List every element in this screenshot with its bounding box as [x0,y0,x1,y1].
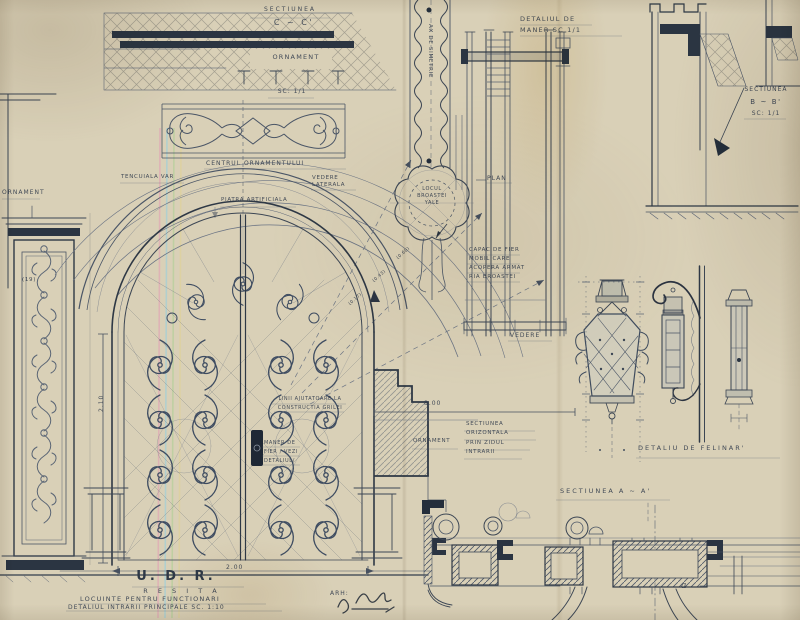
blueprint-sheet: SECTIUNEA C ~ C' ORNAMENT SC: 1/1 CENTRU… [0,0,800,620]
label-detaliul-intrarii: DETALIUL INTRARII PRINCIPALE SC. 1:10 [68,604,318,611]
label-radial-dim-2: (0.43) [372,269,387,284]
label-section-cc-sub: C ~ C' [272,18,316,27]
label-pilaster-note: (19) [22,277,52,283]
label-section-bb-title: SECTIUNEA [738,86,794,93]
label-section-bb-sub: B ~ B' [744,98,788,106]
label-ornament-mid: ORNAMENT [413,438,461,444]
label-udr: U. D. R. [130,569,222,584]
label-radial-dim-1: (0.17) [348,292,363,307]
label-piatra-artificiala: PIATRA ARTIFICIALA [221,197,311,203]
label-vedere-laterala: VEDERE LATERALA [312,175,372,189]
label-scale-cc: SC: 1/1 [270,88,314,95]
label-layer: SECTIUNEA C ~ C' ORNAMENT SC: 1/1 CENTRU… [0,0,800,620]
label-vedere-handle: VEDERE [510,332,554,339]
label-maner-fier: MANER DE FIER / VEZI DETALIUL/ [264,439,308,466]
label-felinar-title: DETALIU DE FELINAR' [638,445,788,453]
label-horizontal-section: SECTIUNEA ORIZONTALA PRIN ZIDUL INTRARII [466,420,536,457]
label-plan: PLAN [487,175,523,182]
label-tencuiala-var: TENCUIALA VAR [121,174,201,180]
label-handle-detail-title: DETALIUL DE MANER SC 1/1 [520,14,650,36]
label-capac-fier: CAPAC DE FIER MOBIL CARE ACOPERA ARMAT R… [469,246,529,282]
label-letter-a: a [681,581,697,592]
label-section-cc-title: SECTIUNEA [256,6,324,13]
label-ornament-top: ORNAMENT [258,54,334,62]
label-section-aa-title: SECTIUNEA A ~ A' [560,488,700,496]
label-ornament-left: ORNAMENT [2,189,62,196]
label-dim-800: 8.00 [424,400,454,407]
label-dim-width: 2.00 [226,564,256,571]
label-radial-dim-3: (0.60) [396,246,411,261]
label-linii-ajutatoare: LINII AJUTATOARE LA CONSTRUCTIA GRILEI [272,395,348,413]
label-yale-lock: LOCUL BROASTEI YALE [404,186,460,207]
label-section-bb-scale: SC: 1/1 [742,110,790,117]
label-locuinte: LOCUINTE PENTRU FUNCTIONARI [80,596,310,604]
label-arh: ARH: [330,590,360,597]
label-centrul-ornamentului: CENTRUL ORNAMENTULUI [206,160,356,167]
label-axis-of-symmetry: AX DE SIMETRIE [427,24,433,134]
label-dim-height: 2.10 [98,382,105,412]
